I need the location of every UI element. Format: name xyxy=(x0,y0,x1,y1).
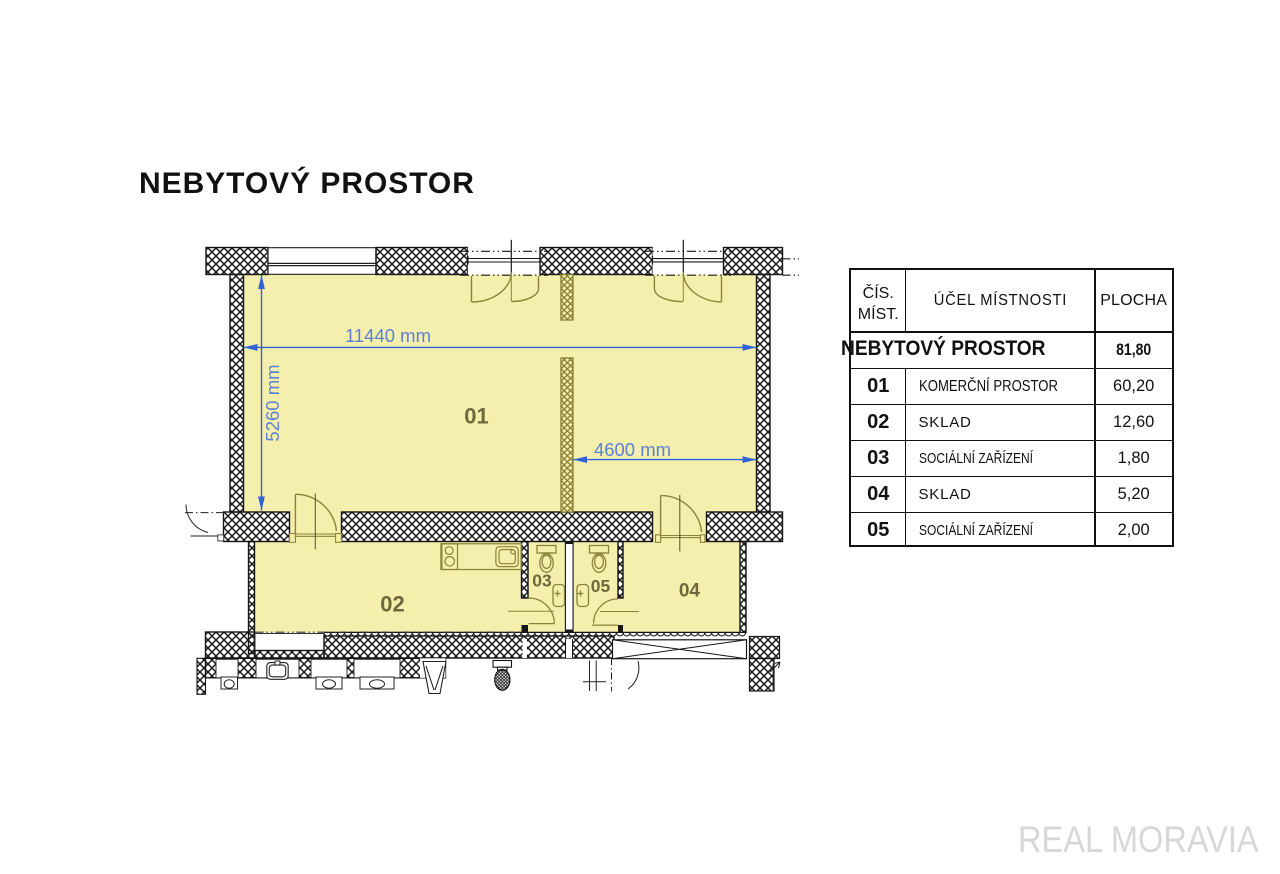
svg-text:04: 04 xyxy=(679,580,701,601)
svg-text:11440 mm: 11440 mm xyxy=(345,325,431,346)
svg-text:05: 05 xyxy=(591,576,611,596)
svg-text:02: 02 xyxy=(380,591,404,616)
svg-text:03: 03 xyxy=(532,571,552,591)
svg-text:01: 01 xyxy=(464,403,488,428)
svg-text:5260 mm: 5260 mm xyxy=(262,364,283,441)
svg-text:4600 mm: 4600 mm xyxy=(594,439,671,460)
